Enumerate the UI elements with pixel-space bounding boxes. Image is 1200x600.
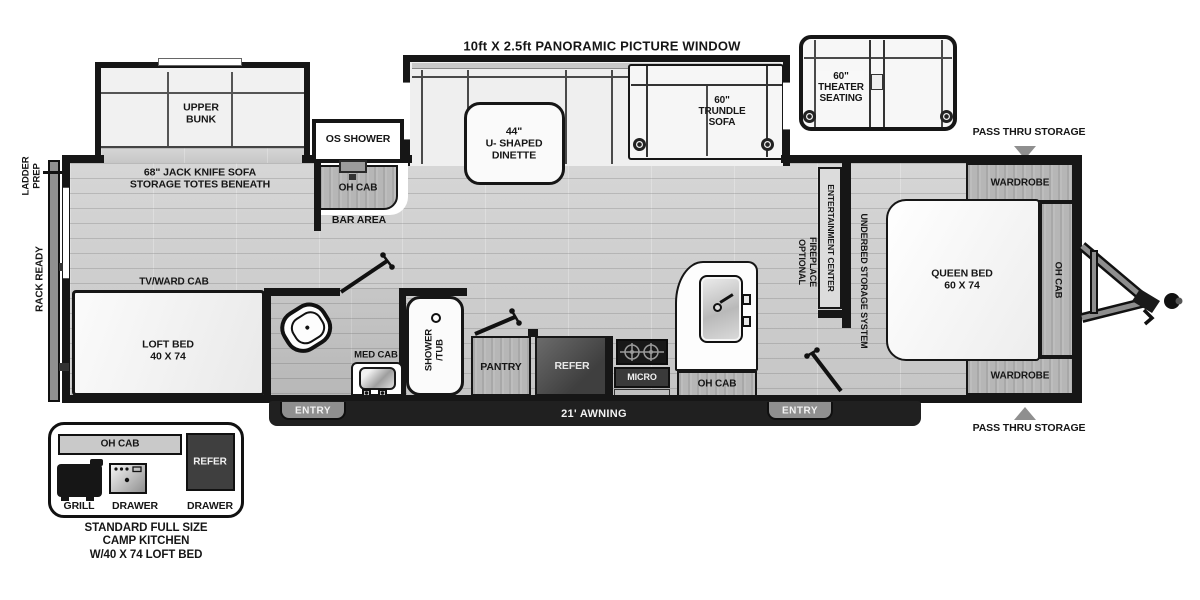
inset-refer-label: REFER <box>193 456 226 467</box>
sink-faucet-icon <box>713 303 722 312</box>
wardrobe-top-label: WARDROBE <box>991 177 1050 188</box>
kitchen-oh-cab-label: OH CAB <box>698 378 737 389</box>
med-cab-label: MED CAB <box>354 351 398 362</box>
bathroom-door-swing <box>341 252 395 292</box>
wardrobe-bottom-label: WARDROBE <box>991 370 1050 381</box>
awning-label: 21' AWNING <box>561 408 627 420</box>
entry-left-label: ENTRY <box>295 405 331 416</box>
inset-drawer-right-label: DRAWER <box>187 501 233 513</box>
optional-fireplace-label-line1: OPTIONAL <box>797 239 807 285</box>
refer-label: REFER <box>554 361 589 373</box>
loft-bed-label: LOFT BED 40 X 74 <box>142 339 194 363</box>
upper-bunk-label: UPPER BUNK <box>183 102 219 126</box>
os-shower-label: OS SHOWER <box>326 134 390 146</box>
inset-drawer-left-label: DRAWER <box>112 501 158 513</box>
pantry-door-swing <box>475 308 522 334</box>
pantry-label: PANTRY <box>480 362 521 374</box>
queen-bed-label: QUEEN BED 60 X 74 <box>931 268 993 292</box>
bedroom-door-swing <box>804 347 841 391</box>
picture-window-label: 10ft X 2.5ft PANORAMIC PICTURE WINDOW <box>463 40 740 55</box>
optional-fireplace-label-line2: FIREPLACE <box>808 237 818 287</box>
shower-tub-label: SHOWER /TUB <box>424 329 445 371</box>
door-swings <box>0 0 1200 600</box>
floorplan-canvas: UPPER BUNK 44" U- SHAPED DINETTE 60" TRU… <box>0 0 1200 600</box>
underbed-storage-label: UNDERBED STORAGE SYSTEM <box>859 213 869 348</box>
jack-knife-sofa-label: 68" JACK KNIFE SOFA STORAGE TOTES BENEAT… <box>130 167 270 191</box>
sink-soap-tab-top <box>742 294 751 305</box>
sink-soap-tab-bottom <box>742 316 751 327</box>
inset-oh-cab-label: OH CAB <box>101 438 140 449</box>
ladder-prep-label: LADDER PREP <box>21 157 42 196</box>
bed-oh-cab-label: OH CAB <box>1052 262 1063 299</box>
entertainment-center-label: ENTERTAINMENT CENTER <box>825 184 835 291</box>
bar-area-label: BAR AREA <box>332 215 386 227</box>
pass-thru-bottom-label: PASS THRU STORAGE <box>973 423 1086 435</box>
entry-right-label: ENTRY <box>782 405 818 416</box>
trundle-sofa-label: 60" TRUNDLE SOFA <box>698 95 745 129</box>
rack-ready-label: RACK READY <box>34 246 45 312</box>
dinette-label: 44" U- SHAPED DINETTE <box>486 126 543 161</box>
bar-oh-cab-label: OH CAB <box>339 182 378 193</box>
inset-caption: STANDARD FULL SIZE CAMP KITCHEN W/40 X 7… <box>85 522 208 562</box>
inset-grill-label: GRILL <box>64 501 95 513</box>
theater-seating-label: 60" THEATER SEATING <box>818 71 864 105</box>
tv-ward-cab-label: TV/WARD CAB <box>139 276 208 287</box>
micro-label: MICRO <box>627 372 657 382</box>
pass-thru-top-label: PASS THRU STORAGE <box>973 127 1086 139</box>
